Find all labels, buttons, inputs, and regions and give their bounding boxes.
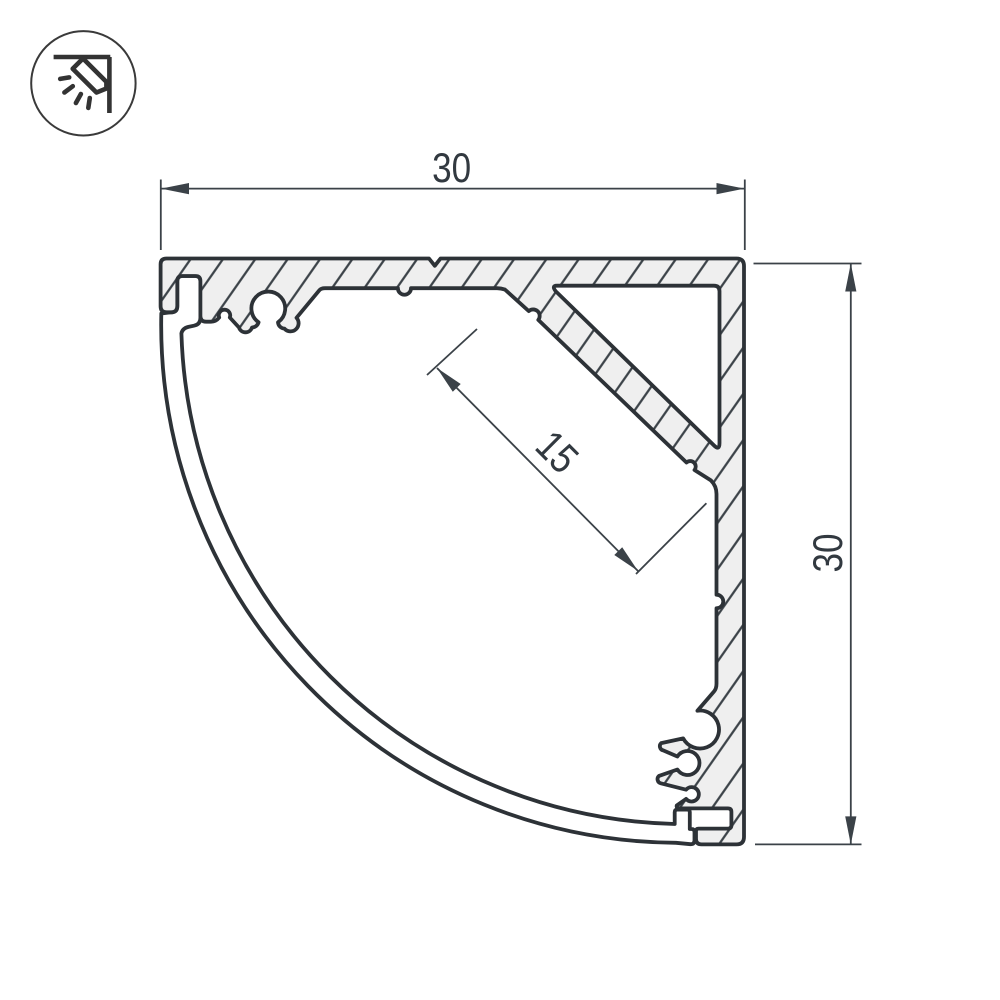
svg-text:30: 30 xyxy=(804,534,851,573)
svg-text:30: 30 xyxy=(432,144,471,191)
